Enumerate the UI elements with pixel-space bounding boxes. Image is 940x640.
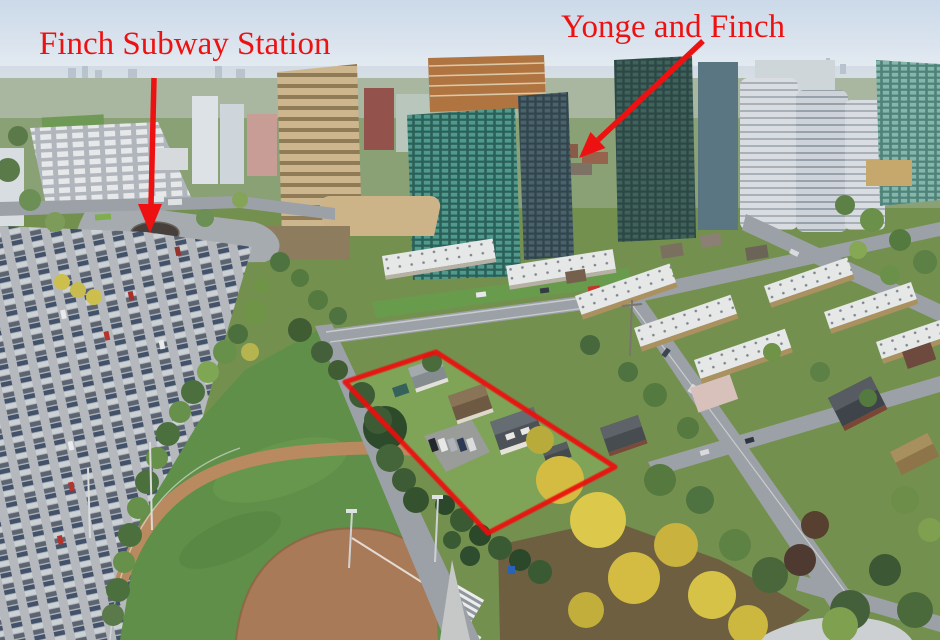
- blue-bin: [508, 566, 515, 574]
- floodlight-head: [432, 495, 443, 499]
- label-finch-subway-station: Finch Subway Station: [39, 26, 331, 62]
- white-tower-1: [192, 96, 218, 184]
- white-tower-2: [220, 104, 244, 184]
- floodlight-head: [346, 509, 357, 513]
- blue-tower: [698, 62, 738, 230]
- salmon-tower: [247, 114, 277, 176]
- label-yonge-and-finch: Yonge and Finch: [561, 9, 785, 45]
- dark-blue-tower: [518, 92, 574, 260]
- tan-low-block: [866, 160, 912, 186]
- bus-terminal: [150, 148, 188, 170]
- aerial-photo-canvas: [0, 0, 940, 640]
- bus-green: [95, 213, 111, 220]
- bus: [168, 199, 182, 205]
- maroon-tower: [364, 88, 394, 150]
- white-curved-tower-1: [740, 78, 798, 230]
- aerial-photo: Finch Subway Station Yonge and Finch: [0, 0, 940, 640]
